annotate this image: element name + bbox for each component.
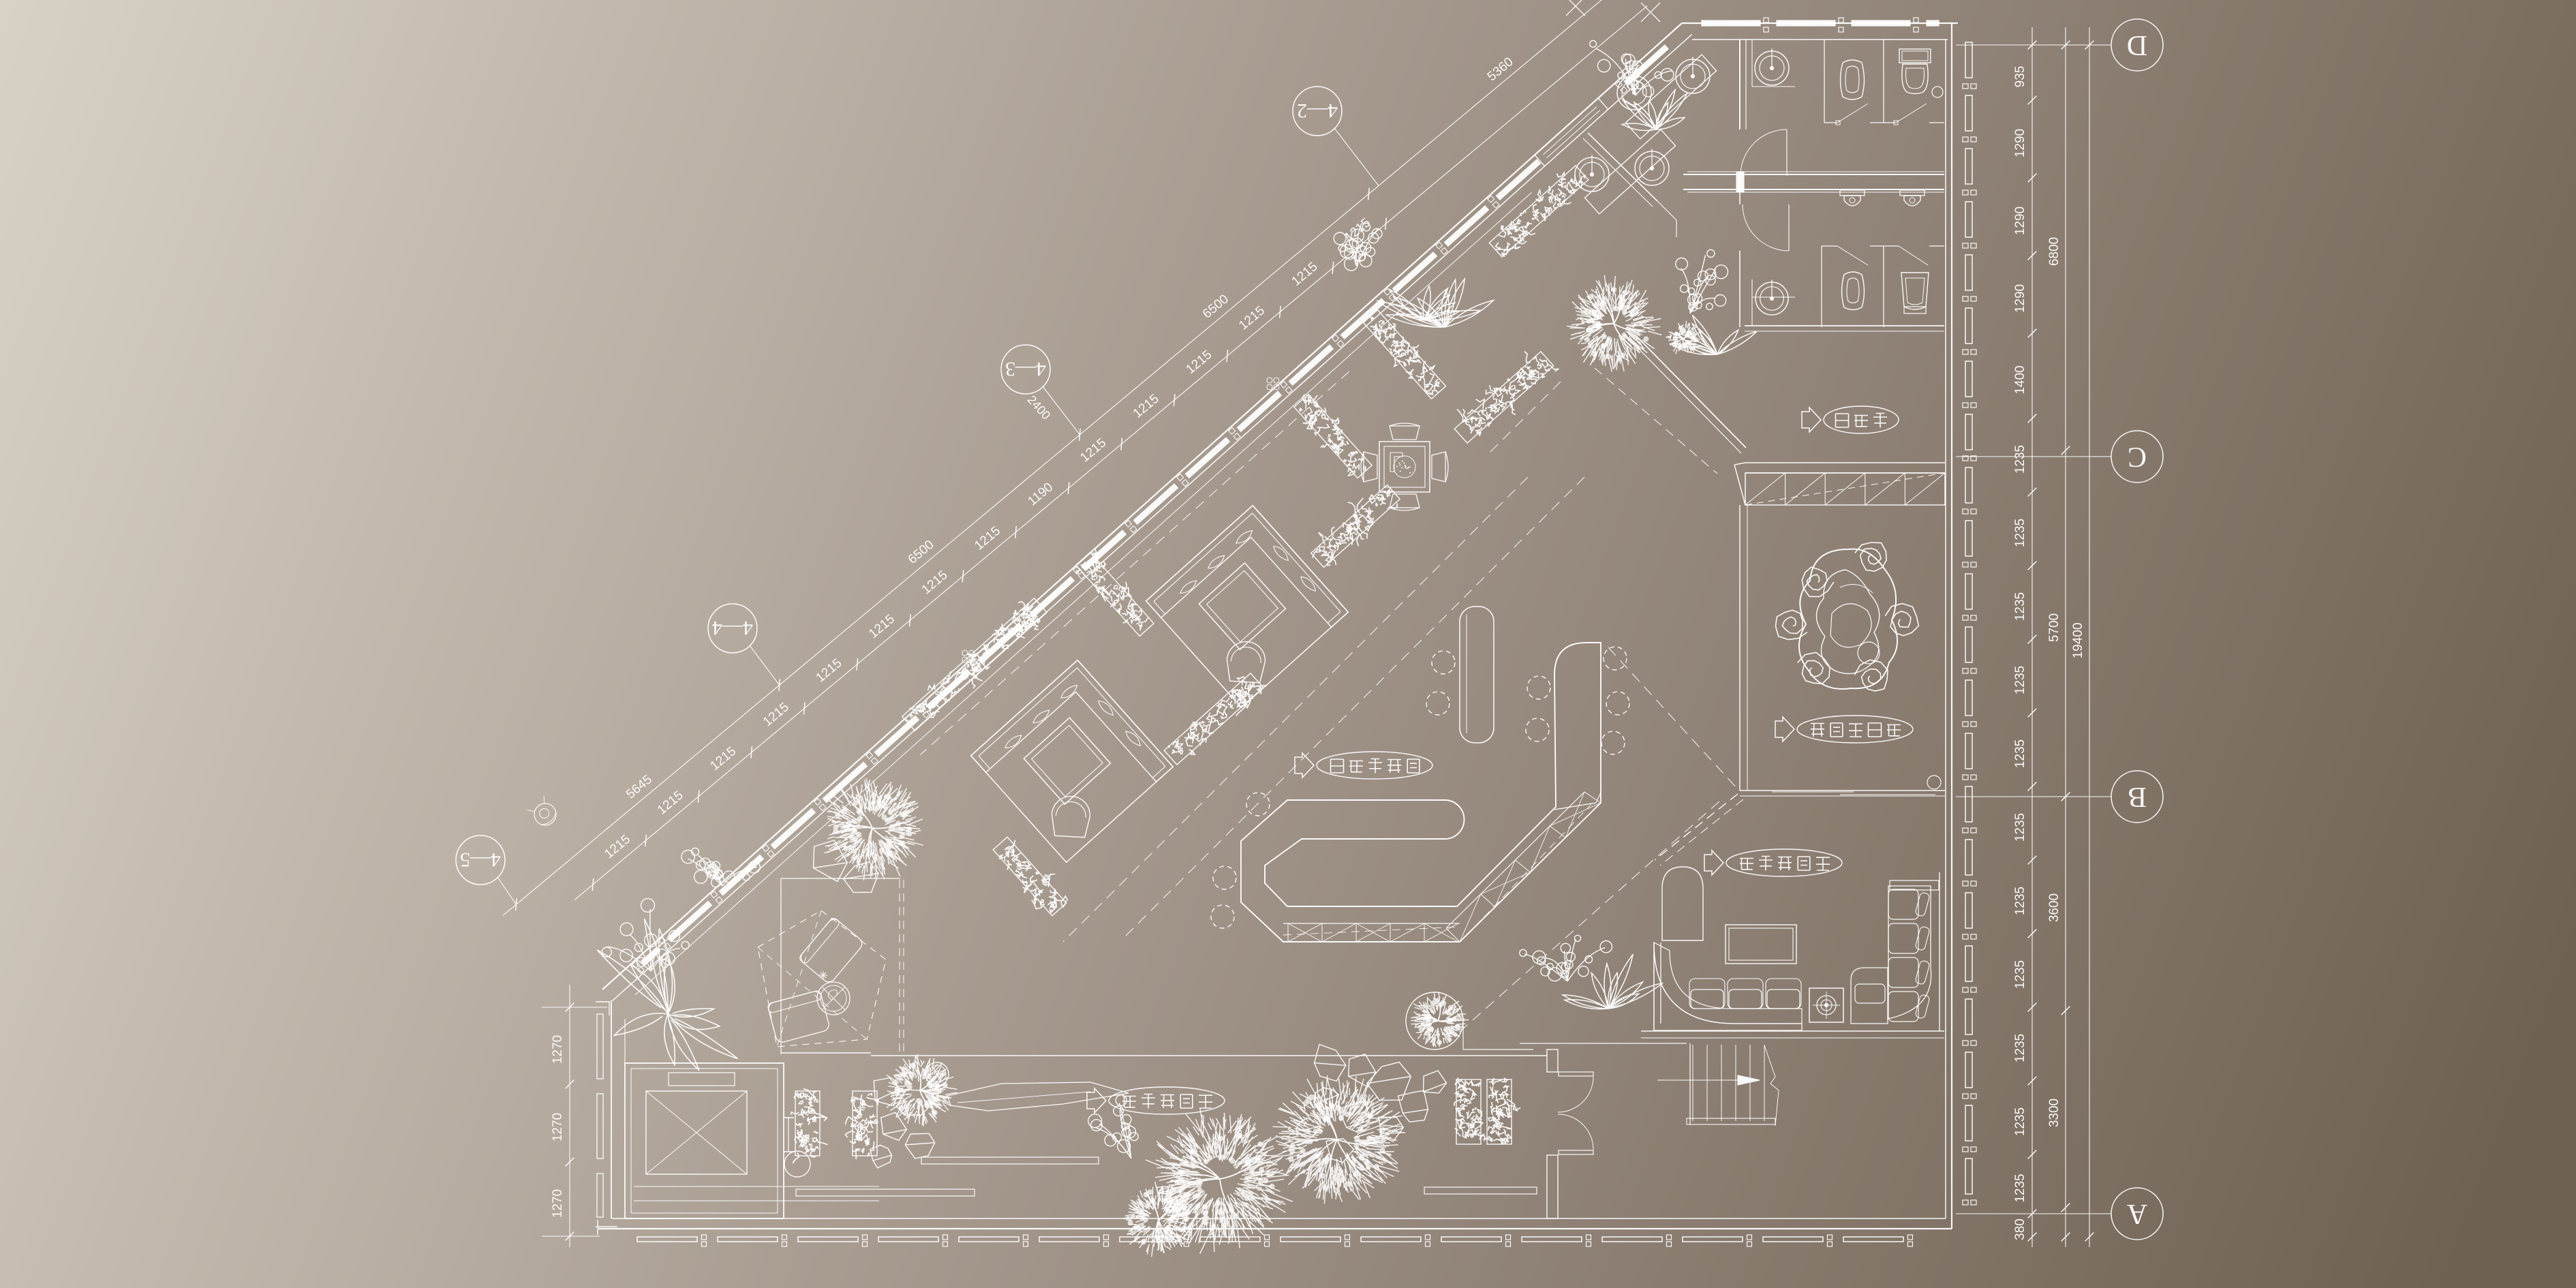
svg-text:1235: 1235 xyxy=(2013,813,2027,842)
svg-text:1290: 1290 xyxy=(2013,284,2027,313)
svg-text:935: 935 xyxy=(2013,66,2027,88)
svg-text:6800: 6800 xyxy=(2047,237,2061,266)
svg-text:1235: 1235 xyxy=(2013,887,2027,915)
svg-text:1235: 1235 xyxy=(2013,960,2027,989)
svg-text:3300: 3300 xyxy=(2047,1099,2061,1127)
svg-text:1235: 1235 xyxy=(2013,1174,2027,1202)
svg-text:1400: 1400 xyxy=(2013,365,2027,394)
svg-text:1270: 1270 xyxy=(551,1113,565,1141)
svg-text:4—3: 4—3 xyxy=(1005,358,1046,380)
svg-text:1235: 1235 xyxy=(2013,519,2027,547)
svg-text:1290: 1290 xyxy=(2013,129,2027,157)
svg-text:380: 380 xyxy=(2013,1218,2027,1240)
svg-text:1270: 1270 xyxy=(551,1189,565,1218)
svg-text:1270: 1270 xyxy=(551,1035,565,1064)
svg-text:4—4: 4—4 xyxy=(712,617,753,639)
svg-text:19400: 19400 xyxy=(2071,623,2085,659)
svg-text:3600: 3600 xyxy=(2047,893,2061,922)
svg-text:1235: 1235 xyxy=(2013,445,2027,474)
svg-text:4—2: 4—2 xyxy=(1297,99,1338,122)
svg-text:C: C xyxy=(2128,441,2147,472)
svg-text:B: B xyxy=(2128,781,2147,812)
svg-text:1235: 1235 xyxy=(2013,739,2027,768)
svg-text:1235: 1235 xyxy=(2013,592,2027,621)
svg-text:D: D xyxy=(2127,29,2147,61)
svg-text:1290: 1290 xyxy=(2013,206,2027,235)
svg-text:1235: 1235 xyxy=(2013,666,2027,694)
svg-text:1235: 1235 xyxy=(2013,1034,2027,1062)
svg-text:5700: 5700 xyxy=(2047,613,2061,642)
svg-text:1235: 1235 xyxy=(2013,1107,2027,1136)
svg-text:A: A xyxy=(2126,1198,2147,1229)
svg-text:4—5: 4—5 xyxy=(460,848,501,871)
